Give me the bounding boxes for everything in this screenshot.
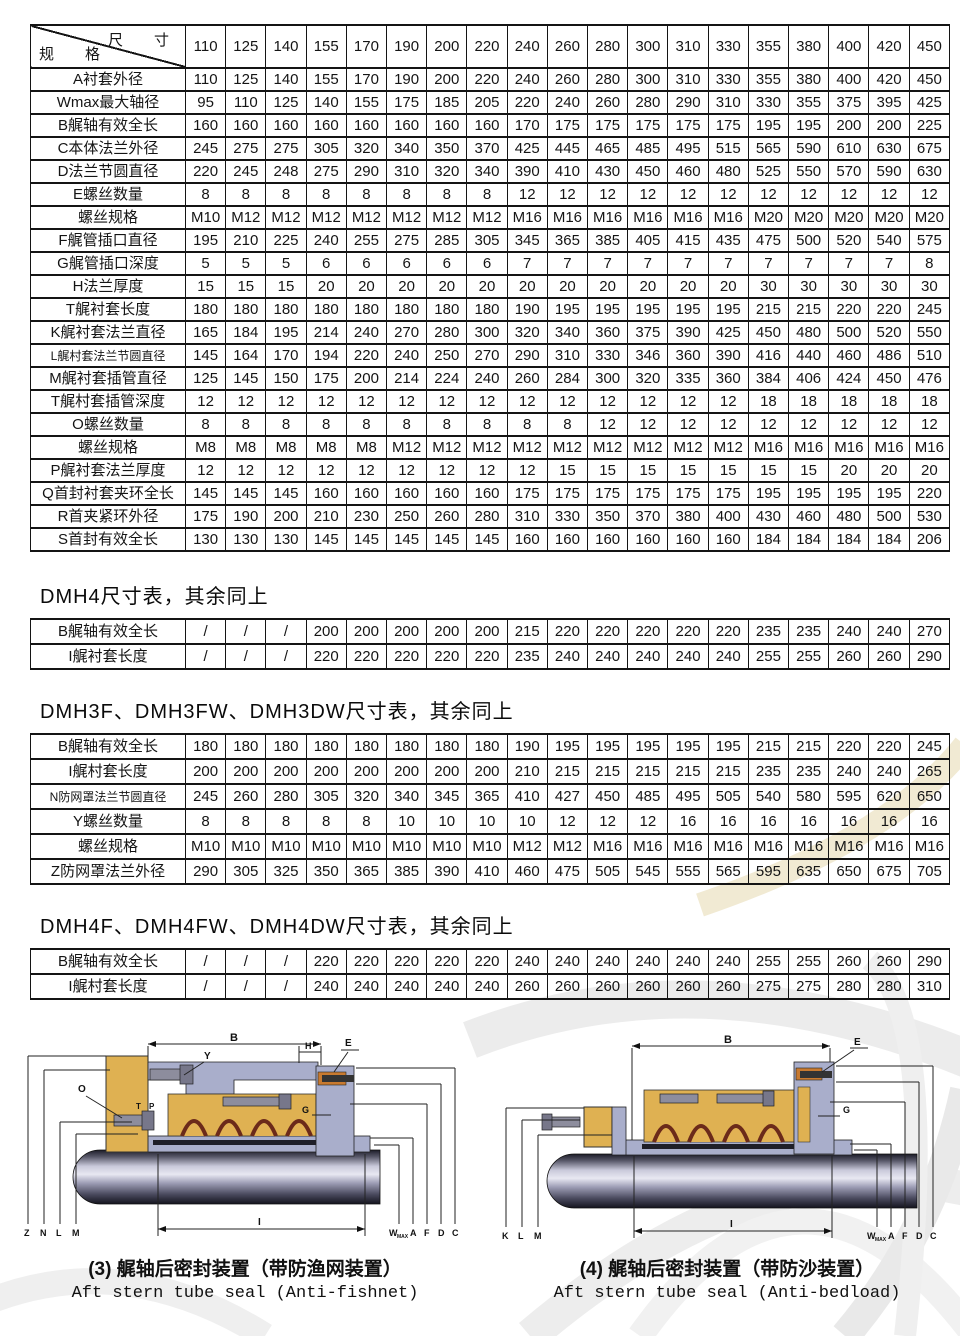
value-cell: 20 xyxy=(387,275,427,298)
value-cell: 175 xyxy=(668,114,708,137)
value-cell: 12 xyxy=(186,390,226,413)
value-cell: 260 xyxy=(507,974,547,999)
value-cell: 400 xyxy=(829,68,869,91)
value-cell: 125 xyxy=(226,68,266,91)
spec-row: L艉村套法兰节圆直径145164170194220240250270290310… xyxy=(31,344,950,367)
spec-row: 螺丝规格M10M10M10M10M10M10M10M10M12M12M16M16… xyxy=(31,834,950,859)
value-cell: M8 xyxy=(186,436,226,459)
value-cell: 15 xyxy=(789,459,829,482)
value-cell: 340 xyxy=(547,321,587,344)
value-cell: 7 xyxy=(708,252,748,275)
value-cell: M20 xyxy=(869,206,909,229)
value-cell: M12 xyxy=(387,436,427,459)
value-cell: 240 xyxy=(547,91,587,114)
size-column-header: 280 xyxy=(588,25,628,68)
value-cell: 255 xyxy=(748,644,788,669)
value-cell: 200 xyxy=(829,114,869,137)
main-dimension-table: 尺 寸规 格1101251401551701902002202402602803… xyxy=(30,24,950,552)
value-cell: M16 xyxy=(547,206,587,229)
value-cell: 540 xyxy=(748,784,788,809)
row-label: O螺丝数量 xyxy=(31,413,186,436)
value-cell: 475 xyxy=(748,229,788,252)
value-cell: 30 xyxy=(869,275,909,298)
value-cell: 20 xyxy=(306,275,346,298)
value-cell: 200 xyxy=(306,759,346,784)
caption-en: Aft stern tube seal (Anti-bedload) xyxy=(512,1284,942,1303)
value-cell: 160 xyxy=(346,482,386,505)
value-cell: M10 xyxy=(226,834,266,859)
value-cell: 255 xyxy=(789,644,829,669)
value-cell: 5 xyxy=(226,252,266,275)
value-cell: 590 xyxy=(789,137,829,160)
value-cell: 450 xyxy=(869,367,909,390)
value-cell: 210 xyxy=(226,229,266,252)
value-cell: 5 xyxy=(266,252,306,275)
clamp-bracket xyxy=(612,1107,626,1155)
value-cell: 12 xyxy=(668,183,708,206)
value-cell: 180 xyxy=(427,734,467,759)
value-cell: 260 xyxy=(869,949,909,974)
value-cell: 240 xyxy=(427,974,467,999)
spec-row: A衬套外径11012514015517019020022024026028030… xyxy=(31,68,950,91)
value-cell: 155 xyxy=(306,68,346,91)
value-cell: 8 xyxy=(387,183,427,206)
value-cell: 220 xyxy=(427,949,467,974)
value-cell: 12 xyxy=(427,459,467,482)
spec-row: I艉衬套长度///2202202202202202352402402402402… xyxy=(31,644,950,669)
value-cell: M12 xyxy=(427,206,467,229)
value-cell: 195 xyxy=(748,114,788,137)
o-bolt-head xyxy=(142,1111,154,1130)
row-label: Wmax最大轴径 xyxy=(31,91,186,114)
value-cell: 270 xyxy=(467,344,507,367)
value-cell: 215 xyxy=(708,759,748,784)
value-cell: 180 xyxy=(427,298,467,321)
value-cell: 175 xyxy=(387,91,427,114)
value-cell: 345 xyxy=(427,784,467,809)
value-cell: 160 xyxy=(186,114,226,137)
value-cell: 8 xyxy=(186,183,226,206)
size-column-header: 355 xyxy=(748,25,788,68)
value-cell: 340 xyxy=(467,160,507,183)
value-cell: M16 xyxy=(829,834,869,859)
value-cell: 595 xyxy=(748,859,788,884)
value-cell: 260 xyxy=(829,644,869,669)
value-cell: 395 xyxy=(869,91,909,114)
value-cell: / xyxy=(266,949,306,974)
value-cell: 270 xyxy=(909,619,949,644)
value-cell: 310 xyxy=(668,68,708,91)
value-cell: 8 xyxy=(306,183,346,206)
value-cell: 284 xyxy=(547,367,587,390)
value-cell: M12 xyxy=(547,436,587,459)
value-cell: 450 xyxy=(588,784,628,809)
value-cell: 630 xyxy=(869,137,909,160)
value-cell: 200 xyxy=(387,619,427,644)
value-cell: 195 xyxy=(588,734,628,759)
value-cell: 20 xyxy=(869,459,909,482)
value-cell: 8 xyxy=(266,183,306,206)
value-cell: 12 xyxy=(226,390,266,413)
technical-drawing-anti-bedload: B E G K L M I W MAX A F D C xyxy=(492,1032,944,1248)
value-cell: M16 xyxy=(708,206,748,229)
value-cell: 8 xyxy=(306,809,346,834)
size-column-header: 310 xyxy=(668,25,708,68)
value-cell: 145 xyxy=(226,482,266,505)
value-cell: M12 xyxy=(266,206,306,229)
value-cell: 12 xyxy=(708,390,748,413)
value-cell: 248 xyxy=(266,160,306,183)
row-label: S首封有效全长 xyxy=(31,528,186,551)
value-cell: 8 xyxy=(427,183,467,206)
value-cell: 235 xyxy=(789,619,829,644)
value-cell: 320 xyxy=(346,784,386,809)
spec-row: B艉轴有效全长///200200200200200215220220220220… xyxy=(31,619,950,644)
value-cell: 200 xyxy=(226,759,266,784)
row-label: B艉轴有效全长 xyxy=(31,734,186,759)
dim-label-l: L xyxy=(518,1231,524,1241)
value-cell: 630 xyxy=(909,160,949,183)
row-label: B艉轴有效全长 xyxy=(31,949,186,974)
value-cell: 650 xyxy=(909,784,949,809)
row-label: E螺丝数量 xyxy=(31,183,186,206)
value-cell: 355 xyxy=(789,91,829,114)
value-cell: / xyxy=(226,619,266,644)
value-cell: 280 xyxy=(467,505,507,528)
value-cell: 150 xyxy=(266,367,306,390)
value-cell: 12 xyxy=(668,413,708,436)
value-cell: 7 xyxy=(748,252,788,275)
body-bolt xyxy=(660,1094,698,1103)
spec-row: R首夹紧环外径175190200210230250260280310330350… xyxy=(31,505,950,528)
value-cell: 12 xyxy=(547,390,587,413)
value-cell: M16 xyxy=(789,834,829,859)
value-cell: 180 xyxy=(226,298,266,321)
value-cell: 350 xyxy=(588,505,628,528)
middle-bolt-head xyxy=(279,1094,291,1109)
value-cell: M16 xyxy=(829,436,869,459)
value-cell: 195 xyxy=(708,734,748,759)
value-cell: 235 xyxy=(748,619,788,644)
value-cell: 180 xyxy=(346,298,386,321)
value-cell: 95 xyxy=(186,91,226,114)
value-cell: 165 xyxy=(186,321,226,344)
row-label: T艉衬套长度 xyxy=(31,298,186,321)
value-cell: 195 xyxy=(588,298,628,321)
o-bolt xyxy=(114,1115,144,1126)
value-cell: / xyxy=(226,974,266,999)
value-cell: 240 xyxy=(668,644,708,669)
value-cell: 290 xyxy=(668,91,708,114)
value-cell: M12 xyxy=(346,206,386,229)
value-cell: 12 xyxy=(387,459,427,482)
row-label: I艉衬套长度 xyxy=(31,644,186,669)
value-cell: 430 xyxy=(588,160,628,183)
value-cell: 405 xyxy=(628,229,668,252)
value-cell: 8 xyxy=(306,413,346,436)
caption-zh: (3) 艉轴后密封装置（带防渔网装置） xyxy=(30,1254,460,1281)
value-cell: 550 xyxy=(909,321,949,344)
row-label: 螺丝规格 xyxy=(31,206,186,229)
value-cell: 215 xyxy=(588,759,628,784)
value-cell: M12 xyxy=(668,436,708,459)
value-cell: 8 xyxy=(427,413,467,436)
value-cell: 370 xyxy=(467,137,507,160)
value-cell: 620 xyxy=(869,784,909,809)
value-cell: 145 xyxy=(266,482,306,505)
section-heading-dmh4: DMH4尺寸表，其余同上 xyxy=(40,580,269,609)
value-cell: 220 xyxy=(547,619,587,644)
value-cell: 16 xyxy=(869,809,909,834)
value-cell: 420 xyxy=(869,68,909,91)
value-cell: M10 xyxy=(467,834,507,859)
value-cell: 390 xyxy=(668,321,708,344)
size-column-header: 400 xyxy=(829,25,869,68)
value-cell: 12 xyxy=(829,183,869,206)
row-label: Z防网罩法兰外径 xyxy=(31,859,186,884)
value-cell: 240 xyxy=(708,644,748,669)
value-cell: 195 xyxy=(547,734,587,759)
value-cell: 12 xyxy=(507,183,547,206)
value-cell: 175 xyxy=(547,482,587,505)
row-label: L艉村套法兰节圆直径 xyxy=(31,344,186,367)
value-cell: 145 xyxy=(186,482,226,505)
value-cell: M16 xyxy=(909,436,949,459)
spec-row: K艉衬套法兰直径16518419521424027028030032034036… xyxy=(31,321,950,344)
value-cell: 145 xyxy=(467,528,507,551)
value-cell: 12 xyxy=(909,183,949,206)
value-cell: 7 xyxy=(628,252,668,275)
value-cell: M16 xyxy=(668,834,708,859)
value-cell: 200 xyxy=(266,759,306,784)
size-column-header: 170 xyxy=(346,25,386,68)
value-cell: 200 xyxy=(186,759,226,784)
row-label: R首夹紧环外径 xyxy=(31,505,186,528)
value-cell: 20 xyxy=(588,275,628,298)
value-cell: 12 xyxy=(547,183,587,206)
row-label: 螺丝规格 xyxy=(31,436,186,459)
value-cell: / xyxy=(226,949,266,974)
value-cell: 355 xyxy=(748,68,788,91)
value-cell: M16 xyxy=(869,436,909,459)
value-cell: / xyxy=(266,974,306,999)
size-column-header: 140 xyxy=(266,25,306,68)
value-cell: 346 xyxy=(628,344,668,367)
value-cell: 240 xyxy=(387,344,427,367)
value-cell: 125 xyxy=(186,367,226,390)
value-cell: 175 xyxy=(628,114,668,137)
dmh4-dimension-table: B艉轴有效全长///200200200200200215220220220220… xyxy=(30,618,950,670)
value-cell: 18 xyxy=(789,390,829,413)
dim-label-p: P xyxy=(149,1102,155,1111)
value-cell: 180 xyxy=(306,734,346,759)
size-column-header: 110 xyxy=(186,25,226,68)
size-column-header: 155 xyxy=(306,25,346,68)
value-cell: 240 xyxy=(708,949,748,974)
value-cell: 185 xyxy=(427,91,467,114)
value-cell: 450 xyxy=(748,321,788,344)
value-cell: M16 xyxy=(708,834,748,859)
spec-row: G艉管插口深度5556666677777777778 xyxy=(31,252,950,275)
value-cell: 320 xyxy=(507,321,547,344)
body-bolt xyxy=(717,1094,765,1103)
value-cell: 425 xyxy=(909,91,949,114)
value-cell: 12 xyxy=(909,413,949,436)
value-cell: 180 xyxy=(467,298,507,321)
corner-size-label: 尺 寸 xyxy=(108,29,177,50)
value-cell: 235 xyxy=(789,759,829,784)
value-cell: 125 xyxy=(266,91,306,114)
value-cell: 16 xyxy=(789,809,829,834)
value-cell: 220 xyxy=(467,949,507,974)
dim-label-k: K xyxy=(502,1231,509,1241)
value-cell: 145 xyxy=(306,528,346,551)
value-cell: 160 xyxy=(387,482,427,505)
value-cell: 30 xyxy=(748,275,788,298)
clamp-bolt xyxy=(550,1117,580,1127)
value-cell: 30 xyxy=(909,275,949,298)
value-cell: 20 xyxy=(507,275,547,298)
value-cell: 245 xyxy=(226,160,266,183)
value-cell: 160 xyxy=(306,114,346,137)
value-cell: M16 xyxy=(507,206,547,229)
value-cell: 220 xyxy=(306,949,346,974)
value-cell: 675 xyxy=(909,137,949,160)
value-cell: 195 xyxy=(789,482,829,505)
value-cell: 16 xyxy=(829,809,869,834)
value-cell: 200 xyxy=(346,619,386,644)
value-cell: 250 xyxy=(387,505,427,528)
value-cell: 220 xyxy=(507,91,547,114)
value-cell: 175 xyxy=(588,482,628,505)
value-cell: 10 xyxy=(427,809,467,834)
value-cell: 195 xyxy=(748,482,788,505)
value-cell: 195 xyxy=(708,298,748,321)
value-cell: 12 xyxy=(829,413,869,436)
value-cell: 130 xyxy=(226,528,266,551)
row-label: M艉衬套插管直径 xyxy=(31,367,186,390)
value-cell: M10 xyxy=(266,834,306,859)
value-cell: 410 xyxy=(467,859,507,884)
value-cell: 15 xyxy=(668,459,708,482)
value-cell: 190 xyxy=(387,68,427,91)
value-cell: 635 xyxy=(789,859,829,884)
value-cell: 12 xyxy=(427,390,467,413)
e-bolt xyxy=(800,1071,832,1078)
value-cell: 15 xyxy=(628,459,668,482)
value-cell: 195 xyxy=(266,321,306,344)
value-cell: 300 xyxy=(628,68,668,91)
value-cell: 425 xyxy=(507,137,547,160)
value-cell: 320 xyxy=(427,160,467,183)
value-cell: 12 xyxy=(346,459,386,482)
value-cell: 427 xyxy=(547,784,587,809)
value-cell: 220 xyxy=(628,619,668,644)
value-cell: M16 xyxy=(869,834,909,859)
value-cell: 240 xyxy=(306,229,346,252)
value-cell: 12 xyxy=(507,390,547,413)
dim-label-e: E xyxy=(854,1037,861,1048)
value-cell: 220 xyxy=(869,298,909,321)
value-cell: 595 xyxy=(829,784,869,809)
value-cell: 8 xyxy=(467,183,507,206)
value-cell: 240 xyxy=(507,949,547,974)
value-cell: 215 xyxy=(789,734,829,759)
value-cell: 255 xyxy=(748,949,788,974)
value-cell: M16 xyxy=(588,206,628,229)
value-cell: 175 xyxy=(668,482,708,505)
value-cell: 495 xyxy=(668,137,708,160)
caption-zh: (4) 艉轴后密封装置（带防沙装置） xyxy=(512,1254,942,1281)
middle-bolt xyxy=(223,1097,281,1106)
value-cell: 8 xyxy=(387,413,427,436)
value-cell: 500 xyxy=(829,321,869,344)
dim-label-t: T xyxy=(136,1102,141,1111)
spec-row: Q首封衬套夹环全长1451451451601601601601601751751… xyxy=(31,482,950,505)
value-cell: 12 xyxy=(306,390,346,413)
value-cell: 365 xyxy=(346,859,386,884)
value-cell: 240 xyxy=(588,949,628,974)
dim-label-z: Z xyxy=(24,1228,30,1238)
value-cell: 240 xyxy=(387,974,427,999)
section-heading-dmh3f: DMH3F、DMH3FW、DMH3DW尺寸表，其余同上 xyxy=(40,695,514,724)
value-cell: 330 xyxy=(547,505,587,528)
value-cell: 406 xyxy=(789,367,829,390)
row-label: G艉管插口深度 xyxy=(31,252,186,275)
flange-channel xyxy=(798,1087,810,1142)
value-cell: 460 xyxy=(507,859,547,884)
value-cell: M8 xyxy=(306,436,346,459)
value-cell: 385 xyxy=(387,859,427,884)
row-label: F艉管插口直径 xyxy=(31,229,186,252)
value-cell: 215 xyxy=(628,759,668,784)
value-cell: 240 xyxy=(507,68,547,91)
value-cell: 240 xyxy=(869,619,909,644)
value-cell: 530 xyxy=(909,505,949,528)
shaft xyxy=(73,1150,380,1204)
value-cell: 7 xyxy=(829,252,869,275)
dmh4f-dimension-table: B艉轴有效全长///220220220220220240240240240240… xyxy=(30,948,950,1000)
value-cell: 180 xyxy=(266,734,306,759)
value-cell: 220 xyxy=(668,619,708,644)
value-cell: 160 xyxy=(588,528,628,551)
value-cell: M20 xyxy=(829,206,869,229)
value-cell: 440 xyxy=(789,344,829,367)
value-cell: 195 xyxy=(789,114,829,137)
value-cell: 525 xyxy=(748,160,788,183)
spec-row: I艉村套长度2002002002002002002002002102152152… xyxy=(31,759,950,784)
value-cell: 210 xyxy=(306,505,346,528)
value-cell: 360 xyxy=(668,344,708,367)
value-cell: 200 xyxy=(306,619,346,644)
value-cell: 170 xyxy=(507,114,547,137)
value-cell: 20 xyxy=(708,275,748,298)
value-cell: 8 xyxy=(226,809,266,834)
value-cell: 240 xyxy=(829,759,869,784)
value-cell: 280 xyxy=(628,91,668,114)
value-cell: 8 xyxy=(467,413,507,436)
value-cell: M12 xyxy=(306,206,346,229)
value-cell: 485 xyxy=(628,137,668,160)
value-cell: / xyxy=(186,974,226,999)
value-cell: 12 xyxy=(628,413,668,436)
value-cell: 20 xyxy=(467,275,507,298)
value-cell: 320 xyxy=(628,367,668,390)
value-cell: 305 xyxy=(306,137,346,160)
value-cell: 510 xyxy=(909,344,949,367)
value-cell: 12 xyxy=(306,459,346,482)
value-cell: 575 xyxy=(909,229,949,252)
